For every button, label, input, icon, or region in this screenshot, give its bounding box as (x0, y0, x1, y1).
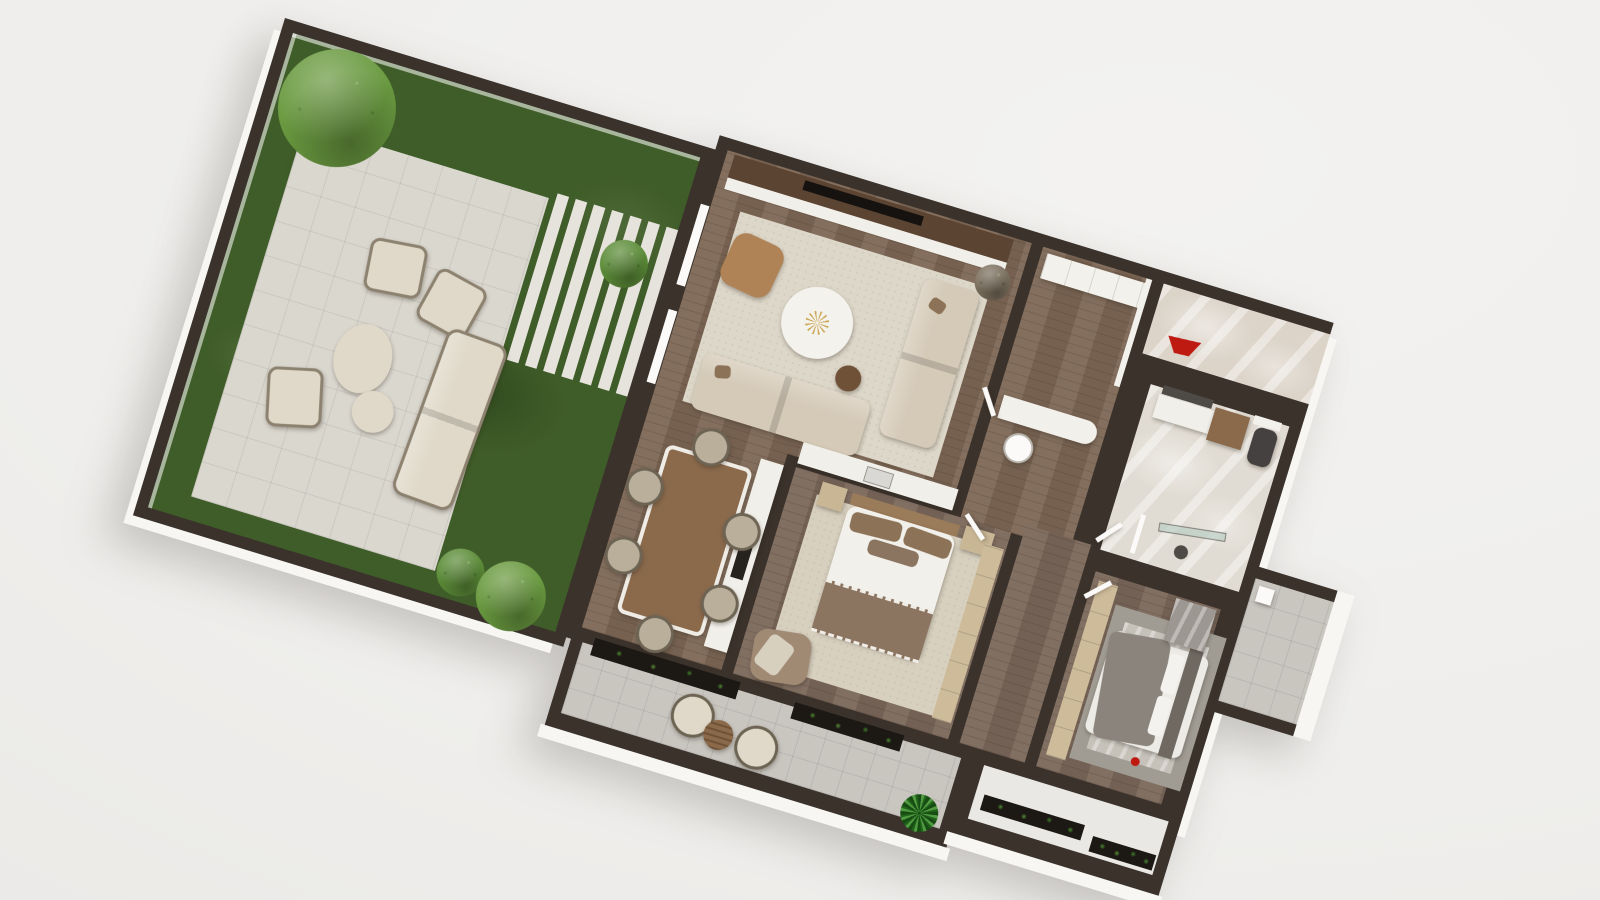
patio-armchair (265, 366, 324, 429)
canvas-background (0, 0, 1600, 900)
sofa-pillow (714, 365, 731, 379)
patio-armchair (362, 236, 429, 300)
